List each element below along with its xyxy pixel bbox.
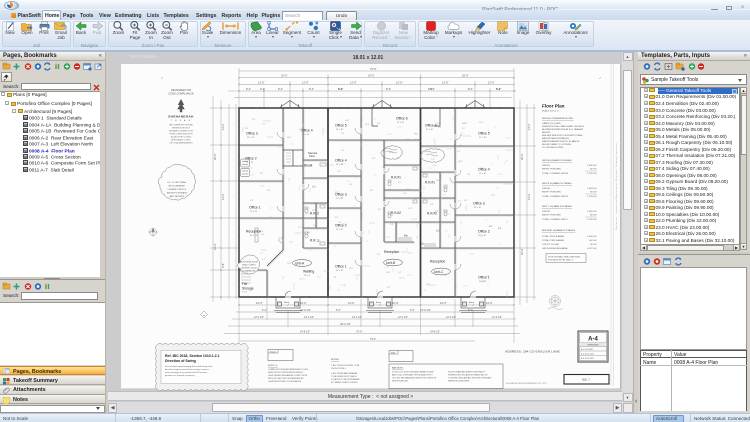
svg-text:3'-0": 3'-0" <box>481 281 485 283</box>
svg-text:160 S.F.: 160 S.F. <box>589 240 597 242</box>
svg-text:BAR NOTE:: BAR NOTE: <box>392 367 404 370</box>
svg-text:RELEASE CONTRACTORS: RELEASE CONTRACTORS <box>169 130 194 133</box>
svg-text:3'-0": 3'-0" <box>349 184 353 186</box>
svg-text:3'-0": 3'-0" <box>387 287 391 289</box>
svg-text:ABOVE RD SIGNAGE: ABOVE RD SIGNAGE <box>167 192 188 195</box>
svg-text:direction of egress travel whe: direction of egress travel where serving… <box>165 368 209 371</box>
svg-text:8'-4": 8'-4" <box>386 87 391 91</box>
svg-text:75'-0": 75'-0" <box>370 67 377 71</box>
svg-text:Clos.: Clos. <box>309 154 316 158</box>
svg-text:3'-0": 3'-0" <box>407 139 411 141</box>
svg-text:9'-0": 9'-0" <box>312 210 316 212</box>
svg-text:Reception: Reception <box>384 250 399 254</box>
svg-text:10'-0": 10'-0" <box>300 301 307 305</box>
svg-text:Unit-B: Unit-B <box>386 261 396 265</box>
svg-text:10'-6": 10'-6" <box>462 123 467 125</box>
svg-text:CARPET FLOORS.: CARPET FLOORS. <box>542 122 561 125</box>
svg-text:12' x 11': 12' x 11' <box>247 137 255 139</box>
svg-text:Reception: Reception <box>430 260 445 264</box>
svg-text:11'-2": 11'-2" <box>444 185 449 187</box>
svg-text:Ref. IBC 2018, Section 1010.1.: Ref. IBC 2018, Section 1010.1.2.1 <box>165 354 220 358</box>
svg-text:8'-4": 8'-4" <box>309 87 314 91</box>
svg-text:10'-0": 10'-0" <box>392 301 399 305</box>
svg-text:Unit-A: Unit-A <box>295 262 305 266</box>
svg-text:3'-0": 3'-0" <box>390 215 394 217</box>
svg-text:Office 6: Office 6 <box>425 124 437 128</box>
svg-text:UNLESS OTHERWISE NOTED:: UNLESS OTHERWISE NOTED: <box>542 118 574 120</box>
svg-text:WATER HEATER IN ATTIC W FAN W/: WATER HEATER IN ATTIC W FAN W/ <box>542 140 580 143</box>
svg-text:BUILDING SQUARE FOOTAGES:: BUILDING SQUARE FOOTAGES: <box>542 229 576 232</box>
svg-text:5'-4": 5'-4" <box>437 149 441 151</box>
svg-text:6'-8": 6'-8" <box>335 217 339 219</box>
svg-text:5'-2": 5'-2" <box>468 309 473 312</box>
svg-text:75'-0": 75'-0" <box>370 338 376 341</box>
svg-text:12'-6": 12'-6" <box>396 81 403 85</box>
svg-text:6'-8": 6'-8" <box>489 226 493 228</box>
svg-text:SPECIFICATIONS.: SPECIFICATIONS. <box>392 380 409 383</box>
svg-text:HEIGHT.: HEIGHT. <box>542 132 551 134</box>
svg-text:11' x 10': 11' x 10' <box>336 164 344 166</box>
svg-text:10' x 10': 10' x 10' <box>302 134 310 136</box>
svg-text:11' x 10': 11' x 10' <box>479 137 487 139</box>
svg-text:11'-2": 11'-2" <box>436 180 441 182</box>
svg-text:REVIEWED FOR: REVIEWED FOR <box>171 88 191 92</box>
svg-text:12'-6": 12'-6" <box>488 81 495 85</box>
svg-text:WITH CEC SECTION 700 REFERENCE: WITH CEC SECTION 700 REFERENCED <box>268 378 304 380</box>
svg-text:ENTRY PORCHES: ENTRY PORCHES <box>542 215 561 217</box>
svg-text:R.R.#1: R.R.#1 <box>425 181 435 185</box>
svg-text:SEE BUILDER FOR COUNTERTOP AND: SEE BUILDER FOR COUNTERTOP AND <box>542 134 583 137</box>
svg-text:TOTAL COVERED UNIT C:: TOTAL COVERED UNIT C: <box>542 218 569 221</box>
svg-text:LIGHT, BE AND HIGH ABUSE COMPL: LIGHT, BE AND HIGH ABUSE COMPLY WITH <box>268 374 308 377</box>
svg-text:16'-4": 16'-4" <box>520 248 524 255</box>
svg-text:8'-0": 8'-0" <box>372 158 376 160</box>
svg-text:24'-8 1/2": 24'-8 1/2" <box>300 308 311 312</box>
svg-text:25'-0": 25'-0" <box>462 74 469 78</box>
svg-text:area containing an occupant lo: area containing an occupant load of 50 o… <box>165 371 208 374</box>
svg-text:9'-6": 9'-6" <box>261 234 265 236</box>
svg-text:9'-6": 9'-6" <box>250 200 254 202</box>
svg-text:Office 2: Office 2 <box>245 157 257 161</box>
svg-text:9'-0": 9'-0" <box>415 134 419 136</box>
svg-text:3'-0": 3'-0" <box>377 254 381 256</box>
svg-text:20'-0": 20'-0" <box>213 153 217 160</box>
svg-text:R.R. 2: R.R. 2 <box>310 212 319 216</box>
svg-text:10'-6": 10'-6" <box>389 152 394 154</box>
svg-text:12'-6": 12'-6" <box>442 81 449 85</box>
svg-text:ALUMINUM WINDOWS AT 8'-0" HEAD: ALUMINUM WINDOWS AT 8'-0" HEADER <box>542 128 584 131</box>
svg-text:ENTRY PORCHES: ENTRY PORCHES <box>542 169 561 171</box>
svg-text:11' x 10': 11' x 10' <box>336 229 344 231</box>
svg-text:WHERE ACCESSORIES.: WHERE ACCESSORIES. <box>448 380 470 383</box>
svg-text:12'-2 1/2": 12'-2 1/2" <box>304 316 314 319</box>
svg-text:A-1 9-09-1007: A-1 9-09-1007 <box>581 348 593 351</box>
svg-text:T E X A S: T E X A S <box>171 119 191 122</box>
svg-text:ADDRESS: 284 CO ENGLISH LANE.: ADDRESS: 284 CO ENGLISH LANE. <box>505 350 561 354</box>
svg-text:5'-4": 5'-4" <box>403 193 407 195</box>
svg-text:OR LOCAL AMENDMENTS: OR LOCAL AMENDMENTS <box>169 142 193 145</box>
svg-text:7'-8": 7'-8" <box>333 277 337 279</box>
svg-text:11'-2": 11'-2" <box>491 195 496 197</box>
svg-text:persons or a Group H occupancy: persons or a Group H occupancy. <box>165 375 195 377</box>
svg-text:24'-8 1/2": 24'-8 1/2" <box>420 308 431 312</box>
svg-text:12'-2 1/2": 12'-2 1/2" <box>446 316 456 319</box>
svg-text:Unit-C: Unit-C <box>434 270 444 274</box>
svg-text:80 S.F.: 80 S.F. <box>590 192 597 194</box>
svg-text:1,650 S.F.: 1,650 S.F. <box>587 211 597 213</box>
svg-text:2'-6": 2'-6" <box>462 128 466 130</box>
svg-text:7'-8": 7'-8" <box>396 158 400 160</box>
svg-text:3'-0": 3'-0" <box>341 150 345 152</box>
svg-text:10'-6": 10'-6" <box>436 231 441 233</box>
svg-text:Office 3: Office 3 <box>473 202 485 206</box>
svg-text:3'-0": 3'-0" <box>457 151 461 153</box>
svg-text:6'-8": 6'-8" <box>281 139 285 141</box>
svg-text:7' x 9': 7' x 9' <box>242 292 248 294</box>
svg-text:5'-4": 5'-4" <box>398 272 402 274</box>
svg-text:10'-0": 10'-0" <box>256 301 263 305</box>
svg-text:11' x 10': 11' x 10' <box>426 129 434 131</box>
svg-text:12'-2": 12'-2" <box>527 193 531 200</box>
svg-text:Office 1: Office 1 <box>249 206 261 210</box>
svg-text:SCALE 1/4"=1'-0": SCALE 1/4"=1'-0" <box>542 110 559 113</box>
svg-text:REVIEW DOES NOT: REVIEW DOES NOT <box>172 128 191 130</box>
svg-text:12'-2": 12'-2" <box>527 123 531 130</box>
svg-text:25'-0": 25'-0" <box>281 74 288 78</box>
svg-text:ROUTE DRAIN AND INSERT DISPOSA: ROUTE DRAIN AND INSERT DISPOSAL IF <box>448 371 486 374</box>
svg-text:14' x 10': 14' x 10' <box>250 235 258 237</box>
svg-text:DOOR LOCK IN KITCHEN AND BREAK: DOOR LOCK IN KITCHEN AND BREAK ROOMS <box>392 371 434 374</box>
svg-text:File: File <box>242 282 247 286</box>
svg-text:5'-4": 5'-4" <box>433 165 437 167</box>
svg-text:A-3 12-16-2021: A-3 12-16-2021 <box>581 357 594 360</box>
svg-text:APPLICABLE CODES,: APPLICABLE CODES, <box>171 139 191 142</box>
svg-text:20'-0": 20'-0" <box>520 153 524 160</box>
svg-text:12' x 9': 12' x 9' <box>304 275 311 277</box>
svg-text:Direction of Swing: Direction of Swing <box>165 359 196 363</box>
svg-text:5'-4": 5'-4" <box>269 217 273 219</box>
svg-text:TOTAL COVERED UNIT B:: TOTAL COVERED UNIT B: <box>542 195 569 198</box>
svg-text:10'-0": 10'-0" <box>440 301 447 305</box>
svg-text:5'-2": 5'-2" <box>336 309 341 312</box>
svg-text:4'-2": 4'-2" <box>480 231 484 233</box>
svg-text:4'-2": 4'-2" <box>458 201 462 203</box>
svg-text:Wall: Wall <box>391 353 395 355</box>
svg-text:8'-4": 8'-4" <box>278 87 283 91</box>
svg-text:5'-4": 5'-4" <box>313 225 317 227</box>
svg-text:NOTES:: NOTES: <box>331 359 340 361</box>
svg-text:8'-0": 8'-0" <box>486 276 490 278</box>
svg-text:8'-4": 8'-4" <box>428 87 433 91</box>
svg-text:ELECTRICAL ROOM: ELECTRICAL ROOM <box>240 261 258 264</box>
svg-text:1,730 S.F.: 1,730 S.F. <box>587 196 597 198</box>
svg-text:LOCATION TO BE DETERMINED: LOCATION TO BE DETERMINED <box>331 378 360 381</box>
svg-text:8'-0": 8'-0" <box>260 231 264 233</box>
svg-text:OFFICE: OFFICE <box>542 211 551 213</box>
svg-text:AND SECURED: AND SECURED <box>170 195 185 198</box>
svg-text:10' CEILINGS DOWN.: 10' CEILINGS DOWN. <box>542 147 564 149</box>
svg-text:9'-6": 9'-6" <box>335 192 339 194</box>
svg-text:11' x 10': 11' x 10' <box>479 173 487 175</box>
svg-text:REVISIONS: REVISIONS <box>588 345 600 347</box>
svg-text:OF 5-3/8" SEE MANUFACTURER FOR: OF 5-3/8" SEE MANUFACTURER FOR COMPLETE <box>392 377 437 380</box>
svg-text:75'-0": 75'-0" <box>356 330 363 334</box>
svg-text:5'-2": 5'-2" <box>262 309 267 312</box>
svg-text:80 S.F.: 80 S.F. <box>590 215 597 217</box>
svg-text:12'-2": 12'-2" <box>221 193 225 200</box>
svg-text:12'-4": 12'-4" <box>365 124 370 126</box>
svg-text:RELIEF DRAIN TO OUTSIDE.: RELIEF DRAIN TO OUTSIDE. <box>542 143 572 146</box>
svg-text:UNIT B SQUARE FOOTAGES:: UNIT B SQUARE FOOTAGES: <box>542 182 573 185</box>
svg-text:6'-8": 6'-8" <box>459 161 463 163</box>
svg-text:TO BE HOME RUN TO EACH: TO BE HOME RUN TO EACH <box>331 375 357 378</box>
svg-text:GROSS BUILDING AREA: GROSS BUILDING AREA <box>542 247 568 250</box>
svg-text:LTL. CLOSET SHALL: LTL. CLOSET SHALL <box>167 181 187 184</box>
svg-text:3'-0": 3'-0" <box>245 128 249 130</box>
svg-text:9'-6": 9'-6" <box>252 119 256 121</box>
svg-text:ENTRY PORCHES: ENTRY PORCHES <box>542 192 561 194</box>
svg-text:10'-6": 10'-6" <box>287 137 292 139</box>
svg-text:11' x 10': 11' x 10' <box>336 198 344 200</box>
svg-text:12'-2 1/2": 12'-2 1/2" <box>254 316 264 319</box>
svg-text:Floor Plan: Floor Plan <box>542 104 565 109</box>
svg-text:Office 6: Office 6 <box>396 117 408 121</box>
svg-text:9'-6": 9'-6" <box>438 127 442 129</box>
svg-text:Keyed: Keyed <box>270 352 276 354</box>
svg-text:HIGH OUTPUT UNIT/90 MIN EXTERI: HIGH OUTPUT UNIT/90 MIN EXTERIOR <box>268 372 303 374</box>
svg-text:3. ALL PHONE AND DATA ARE: 3. ALL PHONE AND DATA ARE <box>331 372 358 375</box>
svg-text:ANY OVERSIGHT IN PLAN: ANY OVERSIGHT IN PLAN <box>169 124 193 127</box>
svg-text:12'-6": 12'-6" <box>350 81 357 85</box>
svg-text:3'-0": 3'-0" <box>377 123 381 125</box>
svg-text:6'-8": 6'-8" <box>378 209 382 211</box>
svg-text:TOTAL COVERED UNIT A:: TOTAL COVERED UNIT A: <box>542 172 569 175</box>
svg-text:7'-8": 7'-8" <box>443 275 447 277</box>
svg-text:SHEETROCK ALL WALLS AND CEILIN: SHEETROCK ALL WALLS AND CEILINGS. <box>542 125 585 128</box>
svg-text:Office 5: Office 5 <box>335 124 347 128</box>
svg-text:1,650 S.F.: 1,650 S.F. <box>587 188 597 190</box>
svg-text:A-4: A-4 <box>588 337 598 343</box>
svg-text:8'-4": 8'-4" <box>246 87 251 91</box>
svg-text:SHALL COMPLY: SHALL COMPLY <box>242 264 256 267</box>
svg-text:Office 4: Office 4 <box>335 159 347 163</box>
svg-text:49'-0 1/2": 49'-0 1/2" <box>340 322 351 326</box>
svg-text:8'-0": 8'-0" <box>260 173 264 175</box>
svg-text:5'-4": 5'-4" <box>262 259 266 261</box>
svg-text:9'-6": 9'-6" <box>430 204 434 206</box>
svg-text:24'-8 1/2": 24'-8 1/2" <box>430 331 440 334</box>
svg-text:10'-6": 10'-6" <box>406 189 411 191</box>
svg-text:BY OWNER. VERIFY IN FIELD.: BY OWNER. VERIFY IN FIELD. <box>331 382 358 384</box>
svg-text:COUNTER. INSULATE ALL EXPOSED: COUNTER. INSULATE ALL EXPOSED PIPES AND <box>448 377 492 380</box>
svg-text:12'-2 1/2": 12'-2 1/2" <box>398 316 408 319</box>
svg-text:7'-8": 7'-8" <box>431 159 435 161</box>
svg-text:Kit.: Kit. <box>420 242 425 246</box>
svg-text:9'-8": 9'-8" <box>221 263 225 268</box>
svg-text:10'-0": 10'-0" <box>348 301 355 305</box>
svg-text:5'-2": 5'-2" <box>410 309 415 312</box>
svg-text:10'-6": 10'-6" <box>386 272 391 274</box>
svg-text:12'-4": 12'-4" <box>479 122 484 124</box>
svg-text:OFFICE: OFFICE <box>542 165 551 167</box>
svg-text:NOTE #1:: NOTE #1: <box>268 365 278 367</box>
svg-text:25'-0": 25'-0" <box>368 74 375 78</box>
svg-text:8'-4": 8'-4" <box>496 87 501 91</box>
svg-text:BACKSPLASH SURFACES.: BACKSPLASH SURFACES. <box>542 137 570 140</box>
svg-text:A-2 10-11-2021: A-2 10-11-2021 <box>581 352 594 355</box>
svg-text:FOR EACH UNIT AT WALL "C": FOR EACH UNIT AT WALL "C" <box>548 259 574 262</box>
svg-text:R.R.#1: R.R.#1 <box>391 176 401 180</box>
svg-text:3'-0": 3'-0" <box>467 174 471 176</box>
svg-text:Storage: Storage <box>242 287 254 291</box>
svg-text:3'-0": 3'-0" <box>312 186 316 188</box>
svg-text:Dimensions · Unauthorized Re: Dimensions · Unauthorized Reproduction P… <box>615 143 618 230</box>
svg-text:11'-2": 11'-2" <box>349 268 354 270</box>
svg-text:2. ALL PORCH LIGHTING TO BE: 2. ALL PORCH LIGHTING TO BE <box>331 364 360 367</box>
svg-text:10'-0": 10'-0" <box>486 301 493 305</box>
svg-text:COMBO EXIT SIGN AND EMERGENCY: COMBO EXIT SIGN AND EMERGENCY LIGHT, <box>268 368 309 371</box>
svg-text:UTILITY CLOSET: UTILITY CLOSET <box>542 244 560 246</box>
svg-text:3'-0": 3'-0" <box>435 211 439 213</box>
svg-text:Office 1: Office 1 <box>335 265 347 269</box>
svg-text:11' x 10': 11' x 10' <box>336 129 344 131</box>
svg-text:4,072 S.F.: 4,072 S.F. <box>587 248 597 250</box>
svg-text:12' x 11': 12' x 11' <box>250 211 258 213</box>
svg-text:9'-6": 9'-6" <box>307 232 311 234</box>
svg-text:1,650 S.F.: 1,650 S.F. <box>587 165 597 167</box>
svg-text:11' x 10': 11' x 10' <box>474 207 482 209</box>
svg-text:ARE U.S.A. COMPLIANT WITH A RE: ARE U.S.A. COMPLIANT WITH A REAL SOFTO <box>392 374 433 377</box>
svg-text:10'-6": 10'-6" <box>345 120 350 122</box>
svg-text:24'-8 1/2": 24'-8 1/2" <box>300 331 310 334</box>
svg-text:SHENANDOAH: SHENANDOAH <box>168 115 194 119</box>
svg-text:6'-2": 6'-2" <box>260 87 265 91</box>
svg-text:Break: Break <box>304 164 313 168</box>
svg-text:12'-4": 12'-4" <box>436 123 441 125</box>
svg-text:UNIT C SQUARE FOOTAGES:: UNIT C SQUARE FOOTAGES: <box>542 205 573 208</box>
svg-text:7'-8": 7'-8" <box>341 133 345 135</box>
svg-text:ON PHOTOCELL.: ON PHOTOCELL. <box>331 368 347 370</box>
svg-text:CLIMATE CONTROL: CLIMATE CONTROL <box>168 188 188 191</box>
svg-text:11' x 10': 11' x 10' <box>397 122 405 124</box>
svg-text:© ALLMAN ESTATES ENGINEERING,: © ALLMAN ESTATES ENGINEERING, INC. 2021 <box>505 382 547 385</box>
svg-text:Pivot or side-hinged swinging: Pivot or side-hinged swinging doors shal… <box>165 365 213 368</box>
svg-text:Office 3: Office 3 <box>246 132 258 136</box>
svg-text:36 S.F.: 36 S.F. <box>590 244 597 246</box>
svg-text:11'-2": 11'-2" <box>244 161 249 163</box>
svg-text:1,730 S.F.: 1,730 S.F. <box>587 173 597 175</box>
svg-text:8'-4": 8'-4" <box>468 87 473 91</box>
svg-text:1,730 S.F.: 1,730 S.F. <box>587 219 597 221</box>
svg-text:R.R.#2: R.R.#2 <box>391 211 401 215</box>
svg-text:BE ILLUMINATED,: BE ILLUMINATED, <box>169 185 186 188</box>
svg-text:8'-0": 8'-0" <box>370 190 374 192</box>
svg-text:12'-6": 12'-6" <box>258 81 265 85</box>
svg-text:8'-0": 8'-0" <box>267 190 271 192</box>
svg-text:4,900 S.F.: 4,900 S.F. <box>587 236 597 238</box>
svg-text:PRESENT BEYOND ANGLED PANEL BE: PRESENT BEYOND ANGLED PANEL BELOW <box>448 374 488 377</box>
svg-text:7'-8": 7'-8" <box>307 271 311 273</box>
svg-text:11'-2": 11'-2" <box>337 171 342 173</box>
svg-text:WITH NEC 110.26: WITH NEC 110.26 <box>242 268 257 270</box>
svg-text:NOTE: DRYWALL FIRE & TAR HUNG: NOTE: DRYWALL FIRE & TAR HUNG <box>548 256 581 259</box>
svg-text:CODE COMPLIANCE: CODE COMPLIANCE <box>168 92 194 96</box>
svg-text:12'-2": 12'-2" <box>221 123 225 130</box>
svg-text:5'-4": 5'-4" <box>498 228 502 230</box>
svg-text:12'-2 1/2": 12'-2 1/2" <box>492 316 502 319</box>
svg-text:16'-4": 16'-4" <box>213 243 217 250</box>
svg-text:8'-4": 8'-4" <box>338 87 343 91</box>
svg-text:12'-4": 12'-4" <box>287 263 292 265</box>
svg-text:CLEARANCES: CLEARANCES <box>243 270 256 273</box>
svg-text:TOTAL OFFICE AREA: TOTAL OFFICE AREA <box>542 235 564 238</box>
svg-text:BLD. 7: BLD. 7 <box>582 379 590 382</box>
svg-text:LIGHTING FIXTURE COLORS ABOVE.: LIGHTING FIXTURE COLORS ABOVE. <box>268 380 302 383</box>
svg-text:9'-6": 9'-6" <box>390 224 394 226</box>
svg-text:12'-2 1/2": 12'-2 1/2" <box>352 316 362 319</box>
svg-text:UNIT A SQUARE FOOTAGES:: UNIT A SQUARE FOOTAGES: <box>542 159 572 162</box>
svg-text:9'-6": 9'-6" <box>479 168 483 170</box>
svg-text:80 S.F.: 80 S.F. <box>590 169 597 171</box>
svg-text:12'-4": 12'-4" <box>408 208 413 210</box>
svg-text:3'-0": 3'-0" <box>317 241 321 243</box>
svg-text:3'-0": 3'-0" <box>414 139 418 141</box>
svg-text:ALL ADOPTED CODES,: ALL ADOPTED CODES, <box>171 136 192 139</box>
svg-text:Office 5: Office 5 <box>478 132 490 136</box>
svg-text:OFFICE: OFFICE <box>542 188 551 190</box>
svg-text:10'-6": 10'-6" <box>299 129 304 131</box>
svg-text:9'-6": 9'-6" <box>464 200 468 202</box>
svg-text:11' x 10': 11' x 10' <box>336 270 344 272</box>
svg-text:FROM COMPLYING WITH: FROM COMPLYING WITH <box>170 134 193 136</box>
svg-text:11'-2": 11'-2" <box>342 224 347 226</box>
svg-text:Kit.: Kit. <box>404 234 409 238</box>
svg-text:12'-6": 12'-6" <box>302 81 309 85</box>
svg-text:TOTAL PORCH AREA: TOTAL PORCH AREA <box>542 239 564 242</box>
svg-text:3'-0": 3'-0" <box>398 182 402 184</box>
